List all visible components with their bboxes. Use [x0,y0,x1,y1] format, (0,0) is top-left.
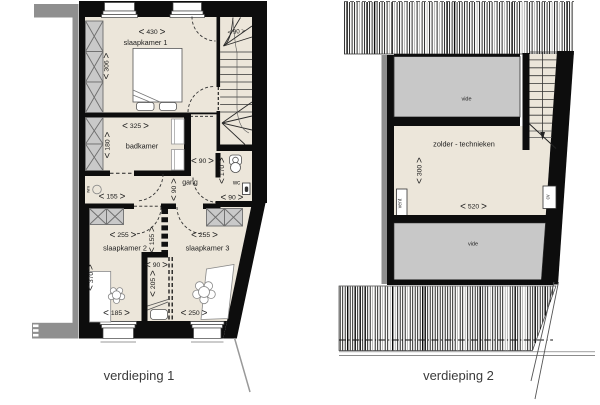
svg-text:slaapkamer 2: slaapkamer 2 [103,244,147,253]
svg-text:zolder - technieken: zolder - technieken [433,140,495,149]
svg-text:vent: vent [398,198,404,208]
svg-text:vide: vide [461,97,471,103]
svg-text:cv: cv [546,194,552,200]
svg-text:gang: gang [182,180,198,187]
svg-text:vide: vide [468,242,478,248]
svg-text:wm: wm [86,186,91,193]
svg-text:verdieping 2: verdieping 2 [423,368,494,383]
svg-text:slaapkamer 3: slaapkamer 3 [186,244,230,253]
svg-text:badkamer: badkamer [126,142,159,151]
svg-text:slaapkamer 1: slaapkamer 1 [124,38,168,47]
svg-text:verdieping 1: verdieping 1 [104,368,175,383]
svg-text:wc: wc [232,181,240,187]
